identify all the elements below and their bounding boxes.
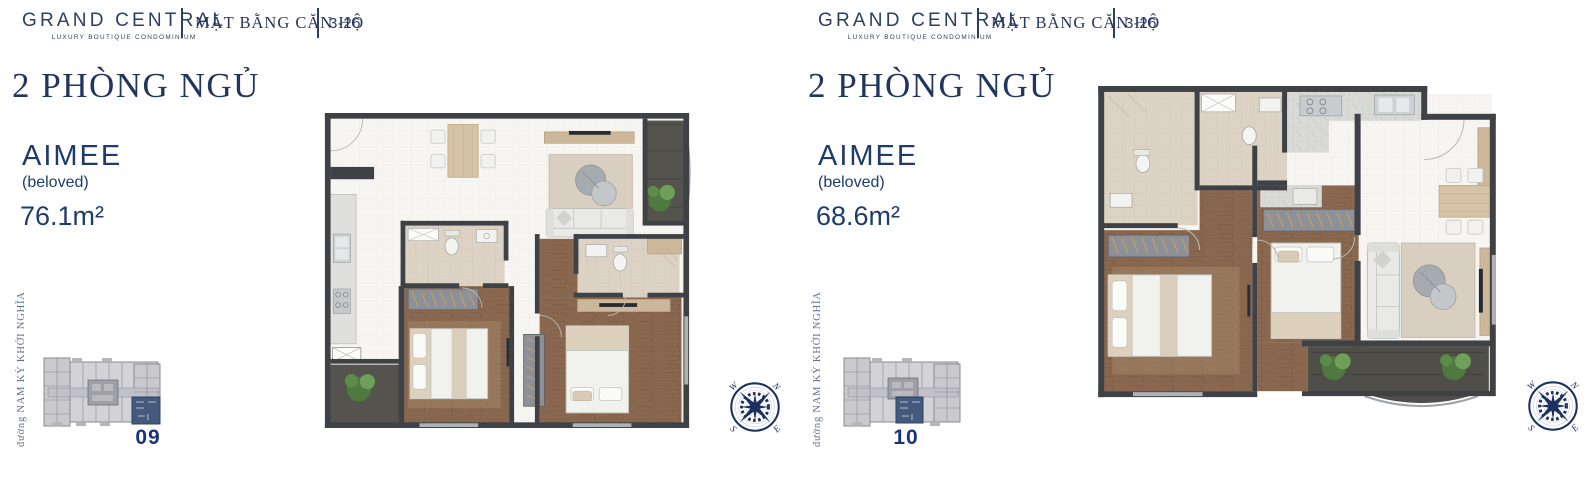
sofa [1368,243,1400,338]
floor-range: 3-26 [1125,15,1157,32]
hallway-floor [540,239,578,298]
unit-area: 76.1m² [20,201,104,232]
header-divider [977,8,979,38]
floor-range: 3-26 [329,15,361,32]
bed [410,329,488,399]
street-label: đường NAM KỲ KHỞI NGHĨA [16,291,27,447]
unit-number-label: 10 [888,426,924,450]
kitchen-area [330,194,356,343]
brochure-page: GRAND CENTRAL LUXURY BOUTIQUE CONDOMINIU… [0,0,1588,482]
unit-nickname: (beloved) [818,174,885,192]
svg-text:S: S [1525,423,1536,434]
bathroom-2 [1198,91,1287,190]
wardrobe [1108,235,1190,257]
svg-text:S: S [727,424,738,435]
sofa [546,209,633,237]
brand-tagline: LUXURY BOUTIQUE CONDOMINIUM [22,34,226,41]
compass-icon: W N S E [722,374,788,440]
highlighted-unit-10 [896,397,923,423]
header-divider [181,8,183,38]
tv-console [544,131,634,143]
floor-plan-unit-10 [1098,86,1496,414]
bed [566,326,628,413]
bedroom-1 [404,286,511,423]
bed [1108,275,1211,357]
bed [1271,243,1341,338]
site-plan-map [842,352,964,432]
bedroom-type-title: 2 PHÒNG NGỦ [12,66,260,106]
unit-nickname: (beloved) [22,174,89,192]
floor-plan-unit-09 [318,113,696,428]
bathroom-1 [404,226,504,287]
tv-console [1479,248,1491,335]
bedroom-1 [1103,230,1252,391]
unit-area: 68.6m² [816,201,900,232]
balcony-right [643,121,690,225]
street-label: đường NAM KỲ KHỞI NGHĨA [812,291,823,447]
header-divider [317,8,319,38]
highlighted-unit-09 [132,397,160,424]
compass-icon: W N S E [1520,373,1586,439]
brand-tagline: LUXURY BOUTIQUE CONDOMINIUM [818,34,1022,41]
header-divider [1113,8,1115,38]
panel-unit-10: GRAND CENTRAL LUXURY BOUTIQUE CONDOMINIU… [796,0,1588,482]
svg-text:E: E [771,424,783,436]
bathroom-1 [1103,91,1197,225]
svg-text:E: E [1569,423,1581,435]
site-plan-map [42,352,164,432]
balcony [1308,346,1489,406]
bedroom-type-title: 2 PHÒNG NGỦ [808,66,1056,106]
unit-name: AIMEE [818,140,918,173]
panel-unit-09: GRAND CENTRAL LUXURY BOUTIQUE CONDOMINIU… [0,0,794,482]
unit-name: AIMEE [22,140,122,173]
unit-number-label: 09 [130,426,166,450]
